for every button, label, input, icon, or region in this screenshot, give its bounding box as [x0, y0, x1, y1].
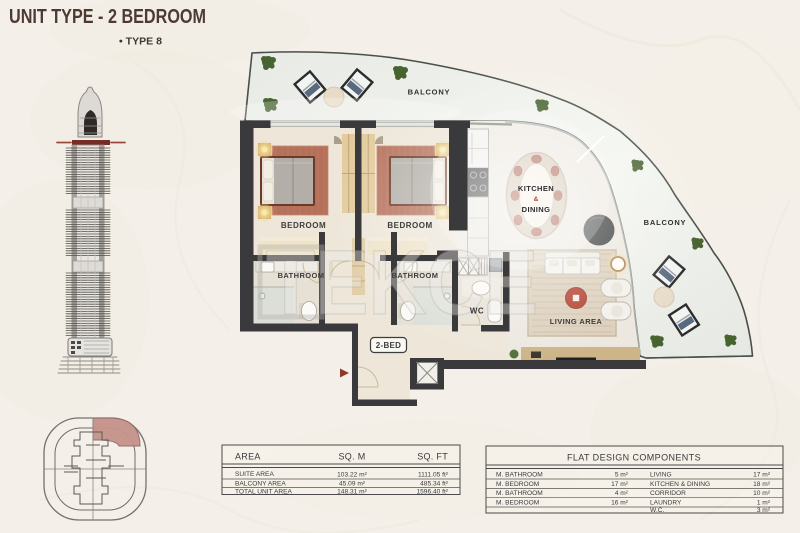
svg-text:DINING: DINING	[522, 205, 551, 214]
svg-text:FLAT DESIGN COMPONENTS: FLAT DESIGN COMPONENTS	[567, 453, 701, 463]
svg-text:AREA: AREA	[235, 452, 261, 462]
svg-text:W.C.: W.C.	[650, 507, 664, 514]
svg-text:M. BATHROOM: M. BATHROOM	[496, 472, 543, 479]
svg-text:10 m²: 10 m²	[753, 490, 771, 497]
svg-text:&: &	[534, 196, 539, 203]
svg-text:SUITE AREA: SUITE AREA	[235, 471, 274, 478]
svg-text:3 m²: 3 m²	[757, 507, 771, 514]
svg-text:BEDROOM: BEDROOM	[281, 221, 326, 230]
svg-text:UNIT TYPE - 2 BEDROOM: UNIT TYPE - 2 BEDROOM	[9, 6, 206, 28]
svg-text:TEKCE: TEKCE	[266, 232, 538, 334]
svg-text:18 m²: 18 m²	[753, 481, 771, 488]
svg-text:SQ. FT: SQ. FT	[417, 452, 448, 462]
svg-text:17 m²: 17 m²	[753, 472, 771, 479]
svg-text:LIVING: LIVING	[650, 472, 672, 479]
svg-text:16 m²: 16 m²	[611, 499, 629, 506]
svg-text:KITCHEN: KITCHEN	[518, 184, 554, 193]
svg-text:BALCONY: BALCONY	[644, 218, 687, 227]
svg-text:5 m²: 5 m²	[615, 472, 629, 479]
svg-text:4 m²: 4 m²	[615, 490, 629, 497]
svg-text:17 m²: 17 m²	[611, 481, 629, 488]
svg-text:BATHROOM: BATHROOM	[278, 271, 325, 280]
svg-text:1596.40 ft²: 1596.40 ft²	[416, 489, 448, 496]
svg-text:LAUNDRY: LAUNDRY	[650, 499, 682, 506]
svg-text:1111.05 ft²: 1111.05 ft²	[418, 472, 449, 479]
svg-text:CORRIDOR: CORRIDOR	[650, 490, 686, 497]
svg-text:BEDROOM: BEDROOM	[387, 221, 432, 230]
svg-text:SQ. M: SQ. M	[338, 452, 365, 462]
svg-text:KITCHEN & DINING: KITCHEN & DINING	[650, 481, 710, 488]
svg-text:2-BED: 2-BED	[376, 341, 402, 350]
svg-text:485.34 ft²: 485.34 ft²	[420, 481, 449, 488]
svg-text:WC: WC	[470, 307, 484, 316]
svg-text:45.09 m²: 45.09 m²	[339, 481, 366, 488]
svg-text:BATHROOM: BATHROOM	[392, 271, 439, 280]
svg-text:• TYPE 8: • TYPE 8	[119, 37, 162, 48]
svg-text:M. BATHROOM: M. BATHROOM	[496, 490, 543, 497]
svg-text:M. BEDROOM: M. BEDROOM	[496, 499, 539, 506]
svg-text:103.22 m²: 103.22 m²	[337, 472, 367, 479]
svg-text:M. BEDROOM: M. BEDROOM	[496, 481, 539, 488]
svg-text:LIVING AREA: LIVING AREA	[550, 317, 603, 326]
svg-text:BALCONY AREA: BALCONY AREA	[235, 481, 286, 488]
svg-text:1 m²: 1 m²	[757, 499, 771, 506]
svg-text:148.31 m²: 148.31 m²	[337, 489, 367, 496]
svg-text:TOTAL UNIT AREA: TOTAL UNIT AREA	[235, 489, 293, 496]
svg-text:BALCONY: BALCONY	[408, 88, 451, 97]
